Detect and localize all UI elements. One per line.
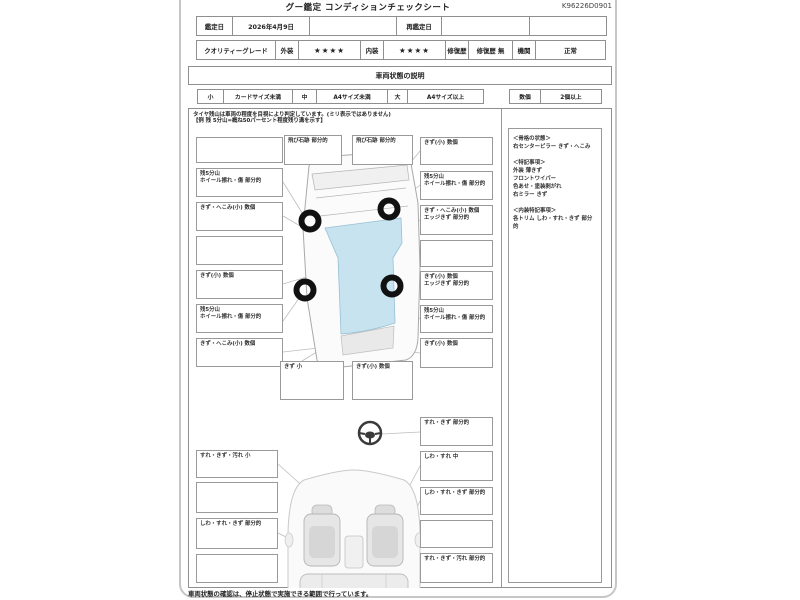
size-small-desc: カードサイズ未満: [223, 89, 293, 104]
engine-label: 機関: [512, 40, 536, 60]
section-title: 車両状態の説明: [188, 66, 612, 85]
callout-left-2: きず・へこみ(小) 数個: [196, 202, 283, 231]
rear-bench: [300, 574, 408, 588]
steering-wheel-icon: [359, 422, 381, 444]
grade-label: クオリティーグレード: [196, 40, 276, 60]
date-empty-cell: [309, 16, 397, 36]
callout-left-0: [196, 137, 283, 163]
callout-int-left-1: [196, 482, 278, 513]
count-key: 数個: [509, 89, 541, 104]
interior-stars: ★★★★: [383, 40, 446, 60]
callout-right-1: 残5分山 ホイール擦れ・傷 部分的: [420, 171, 493, 200]
notes-panel: ＜骨格の状態＞ 右センターピラー きず・へこみ ＜特記事項＞ 外装 薄きず フロ…: [508, 128, 602, 583]
center-console: [345, 536, 363, 568]
callout-left-4: きず(小) 数個: [196, 270, 283, 299]
sheet-code: K96226D0901: [500, 2, 612, 10]
size-large-key: 大: [387, 89, 408, 104]
count-legend: 数個 2個以上: [510, 89, 602, 104]
interior-label: 内装: [360, 40, 384, 60]
size-legend: 小 カードサイズ未満 中 A4サイズ未満 大 A4サイズ以上: [198, 89, 484, 104]
footer-note: 車両状態の確認は、停止状態で実施できる範囲で行っています。: [188, 589, 372, 598]
callout-stone-chips-left: 飛び石跡 部分的: [284, 135, 342, 165]
callout-right-4: きず(小) 数個 エッジきず 部分的: [420, 271, 493, 300]
appraisal-date-row: 鑑定日 2026年4月9日 再鑑定日: [197, 16, 607, 36]
car-interior-view: [285, 470, 423, 588]
callout-int-left-2: しわ・すれ・きず 部分的: [196, 518, 278, 549]
size-mid-key: 中: [292, 89, 317, 104]
page-title: グー鑑定 コンディションチェックシート: [208, 1, 528, 13]
size-small-key: 小: [197, 89, 224, 104]
count-desc: 2個以上: [540, 89, 602, 104]
callout-left-1: 残5分山 ホイール擦れ・傷 部分的: [196, 168, 283, 197]
redate-label: 再鑑定日: [396, 16, 442, 36]
condition-check-sheet: { "page": { "title": "グー鑑定 コンディションチェックシー…: [0, 0, 800, 600]
callout-right-2: きず・へこみ(小) 数個 エッジきず 部分的: [420, 205, 493, 235]
callout-right-5: 残5分山 ホイール擦れ・傷 部分的: [420, 305, 493, 333]
callout-int-left-0: すれ・きず・汚れ 小: [196, 450, 278, 478]
car-top-view: [297, 151, 421, 368]
callout-stone-chips-right: 飛び石跡 部分的: [352, 135, 413, 165]
callout-left-5: 残5分山 ホイール擦れ・傷 部分的: [196, 304, 283, 333]
callout-int-left-3: [196, 554, 278, 583]
callout-int-right-2: しわ・すれ・きず 部分的: [420, 487, 493, 515]
callout-left-3: [196, 236, 283, 265]
callout-bottom-1: きず(小) 数個: [352, 361, 413, 400]
callout-right-3: [420, 240, 493, 267]
wheel-rear-left: [297, 282, 314, 299]
callout-left-6: きず・へこみ(小) 数個: [196, 338, 283, 367]
size-mid-desc: A4サイズ未満: [316, 89, 388, 104]
callout-right-6: きず(小) 数個: [420, 338, 493, 368]
exterior-label: 外装: [275, 40, 299, 60]
callout-int-right-0: すれ・きず 部分的: [420, 417, 493, 446]
callout-right-0: きず(小) 数個: [420, 137, 493, 165]
repair-value: 修復歴 無: [468, 40, 513, 60]
exterior-stars: ★★★★: [298, 40, 361, 60]
callout-int-right-1: しわ・すれ 中: [420, 451, 493, 481]
size-large-desc: A4サイズ以上: [407, 89, 484, 104]
date-value: 2026年4月9日: [232, 16, 310, 36]
date-label: 鑑定日: [196, 16, 233, 36]
quality-grade-row: クオリティーグレード 外装 ★★★★ 内装 ★★★★ 修復歴 修復歴 無 機関 …: [197, 40, 606, 60]
callout-int-right-3: [420, 520, 493, 548]
callout-bottom-0: きず 小: [280, 361, 344, 400]
repair-label: 修復歴: [445, 40, 469, 60]
redate-value: [441, 16, 530, 36]
callout-int-right-4: すれ・きず・汚れ 部分的: [420, 553, 493, 583]
engine-value: 正常: [535, 40, 606, 60]
redate-empty-cell: [529, 16, 607, 36]
